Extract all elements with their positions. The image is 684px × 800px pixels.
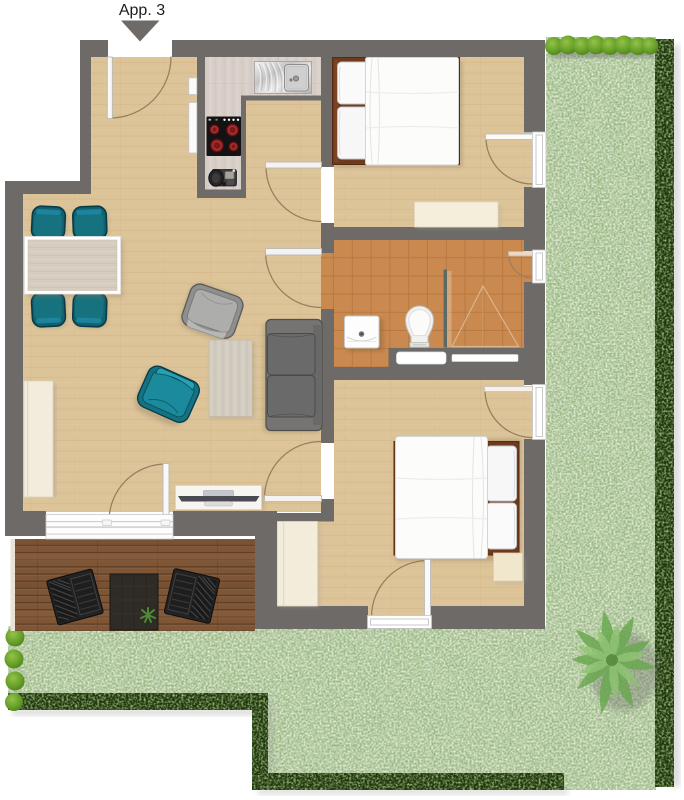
svg-text:App. 3: App. 3 <box>119 2 165 19</box>
